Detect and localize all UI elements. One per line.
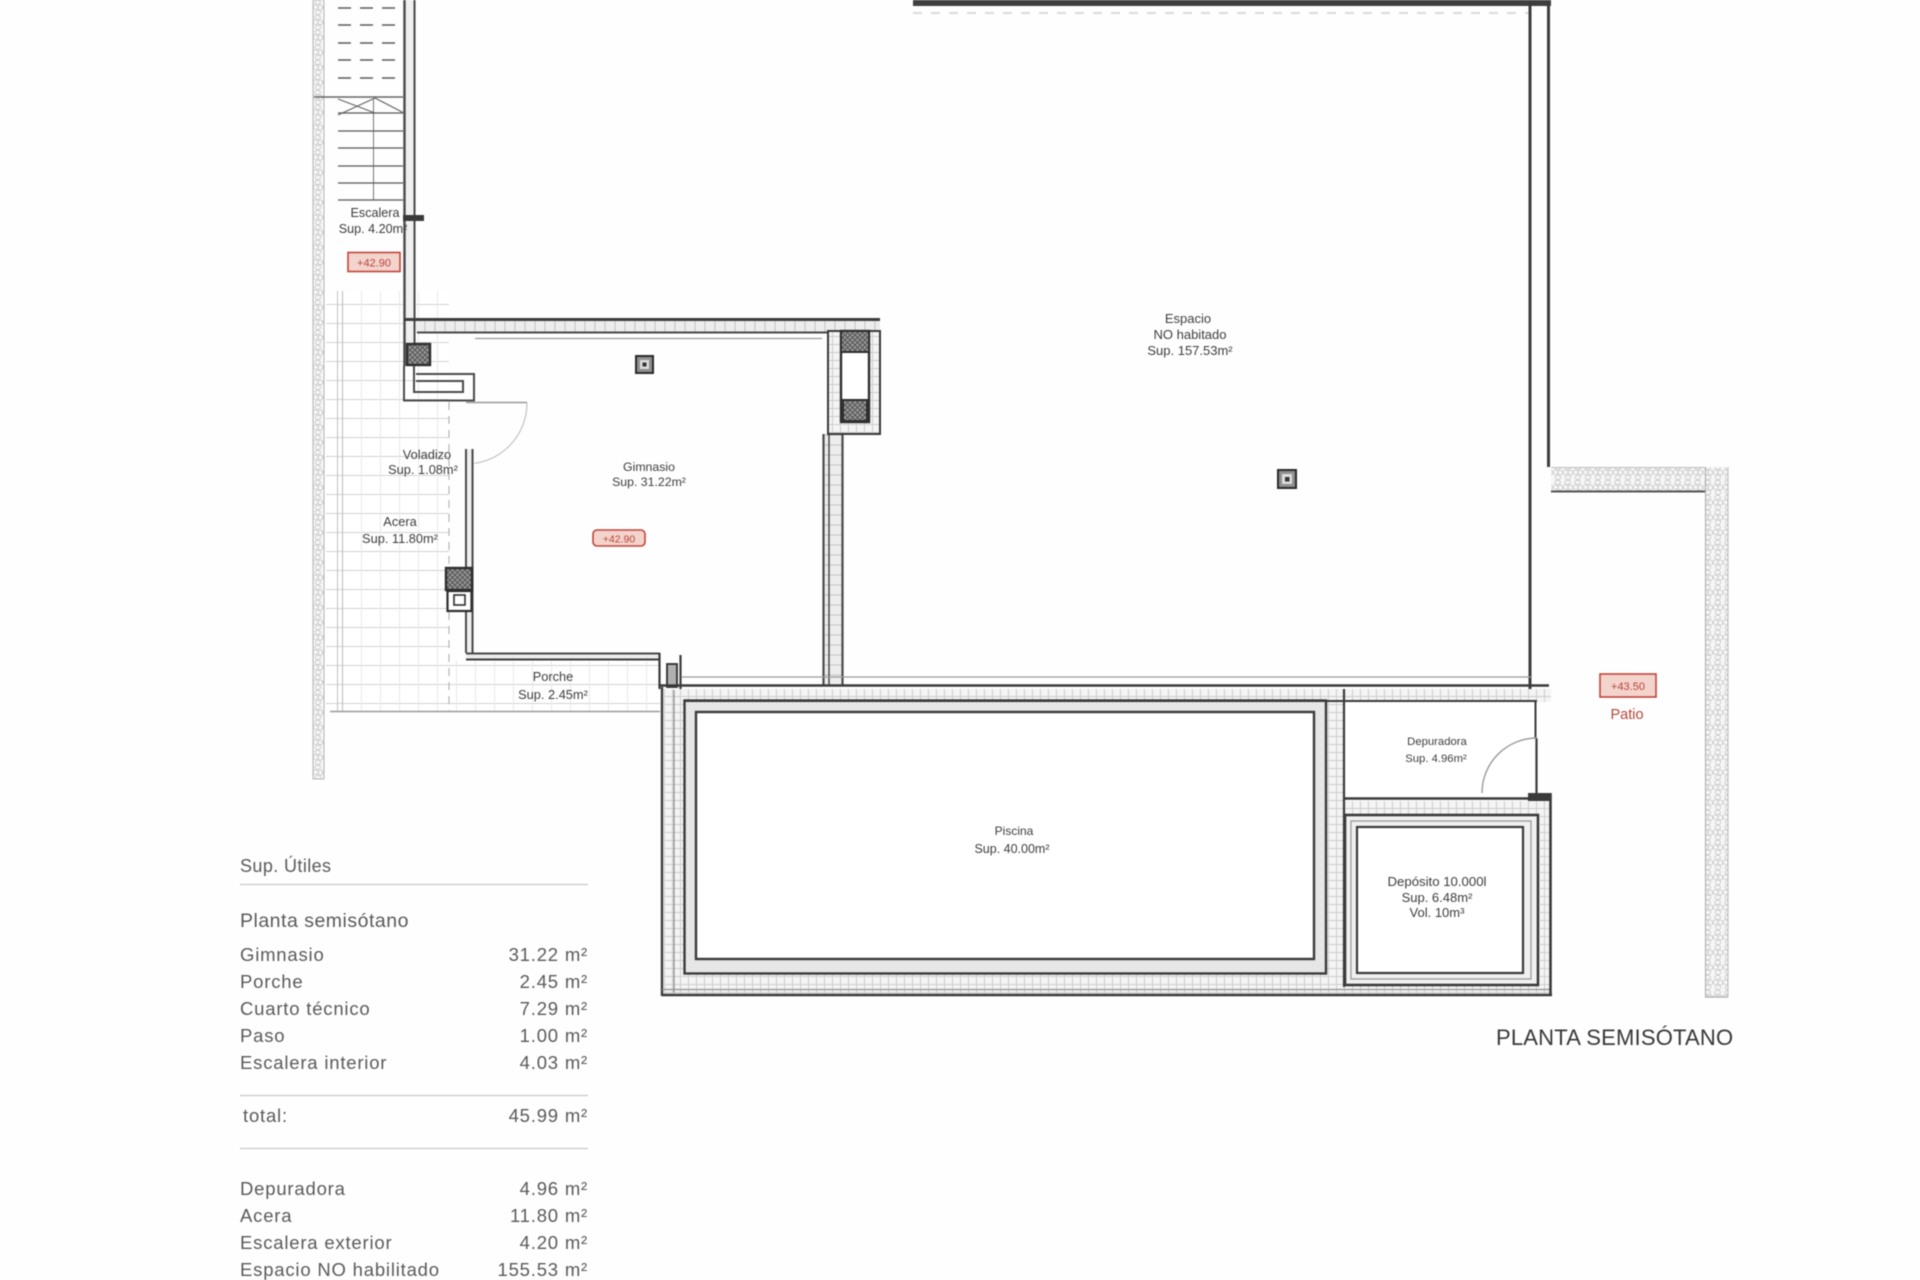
svg-text:1.00 m²: 1.00 m² [520,1025,588,1046]
svg-text:4.96 m²: 4.96 m² [520,1178,588,1199]
svg-text:Sup. 157.53m²: Sup. 157.53m² [1147,343,1233,358]
svg-text:Depuradora: Depuradora [1407,736,1467,748]
svg-text:Escalera interior: Escalera interior [240,1052,387,1073]
svg-text:Sup. Útiles: Sup. Útiles [240,855,331,876]
svg-text:2.45 m²: 2.45 m² [520,971,588,992]
svg-text:Patio: Patio [1610,707,1643,723]
svg-text:Depósito 10.000l: Depósito 10.000l [1388,874,1487,889]
svg-text:Piscina: Piscina [995,824,1034,838]
svg-text:Planta semisótano: Planta semisótano [240,910,409,932]
svg-text:Espacio NO habilitado: Espacio NO habilitado [240,1259,440,1280]
svg-text:+42.90: +42.90 [603,534,636,546]
svg-text:Acera: Acera [383,514,417,529]
svg-text:Escalera exterior: Escalera exterior [240,1232,392,1253]
svg-text:Espacio: Espacio [1165,311,1211,326]
svg-text:Gimnasio: Gimnasio [623,460,675,474]
svg-text:Acera: Acera [240,1205,292,1226]
svg-text:total:: total: [243,1105,288,1126]
svg-text:PLANTA SEMISÓTANO: PLANTA SEMISÓTANO [1496,1025,1733,1050]
svg-text:7.29 m²: 7.29 m² [520,998,588,1019]
svg-text:Sup. 31.22m²: Sup. 31.22m² [612,475,686,489]
svg-text:+43.50: +43.50 [1611,681,1645,693]
svg-text:Sup. 4.20m²: Sup. 4.20m² [339,222,408,236]
svg-text:11.80 m²: 11.80 m² [510,1205,588,1226]
svg-text:Cuarto técnico: Cuarto técnico [240,998,370,1019]
svg-text:Sup. 11.80m²: Sup. 11.80m² [362,531,439,546]
svg-text:Sup. 1.08m²: Sup. 1.08m² [388,462,458,477]
svg-text:+42.90: +42.90 [357,258,391,270]
svg-text:Paso: Paso [240,1025,285,1046]
svg-text:Vol. 10m³: Vol. 10m³ [1410,905,1466,920]
svg-text:Porche: Porche [533,669,574,684]
svg-text:4.03 m²: 4.03 m² [520,1052,588,1073]
svg-text:31.22 m²: 31.22 m² [509,944,588,965]
svg-text:45.99 m²: 45.99 m² [509,1105,588,1126]
svg-text:Porche: Porche [240,971,303,992]
svg-text:Sup. 6.48m²: Sup. 6.48m² [1402,890,1473,905]
svg-text:NO habitado: NO habitado [1154,327,1227,342]
svg-text:Sup. 4.96m²: Sup. 4.96m² [1405,753,1467,765]
svg-text:Sup. 2.45m²: Sup. 2.45m² [518,687,588,702]
svg-text:155.53 m²: 155.53 m² [498,1259,589,1280]
svg-text:Depuradora: Depuradora [240,1178,346,1199]
svg-text:Sup. 40.00m²: Sup. 40.00m² [974,842,1049,856]
svg-text:Escalera: Escalera [351,206,400,220]
svg-text:Voladizo: Voladizo [403,447,451,462]
svg-text:Gimnasio: Gimnasio [240,944,325,965]
svg-text:4.20 m²: 4.20 m² [520,1232,588,1253]
